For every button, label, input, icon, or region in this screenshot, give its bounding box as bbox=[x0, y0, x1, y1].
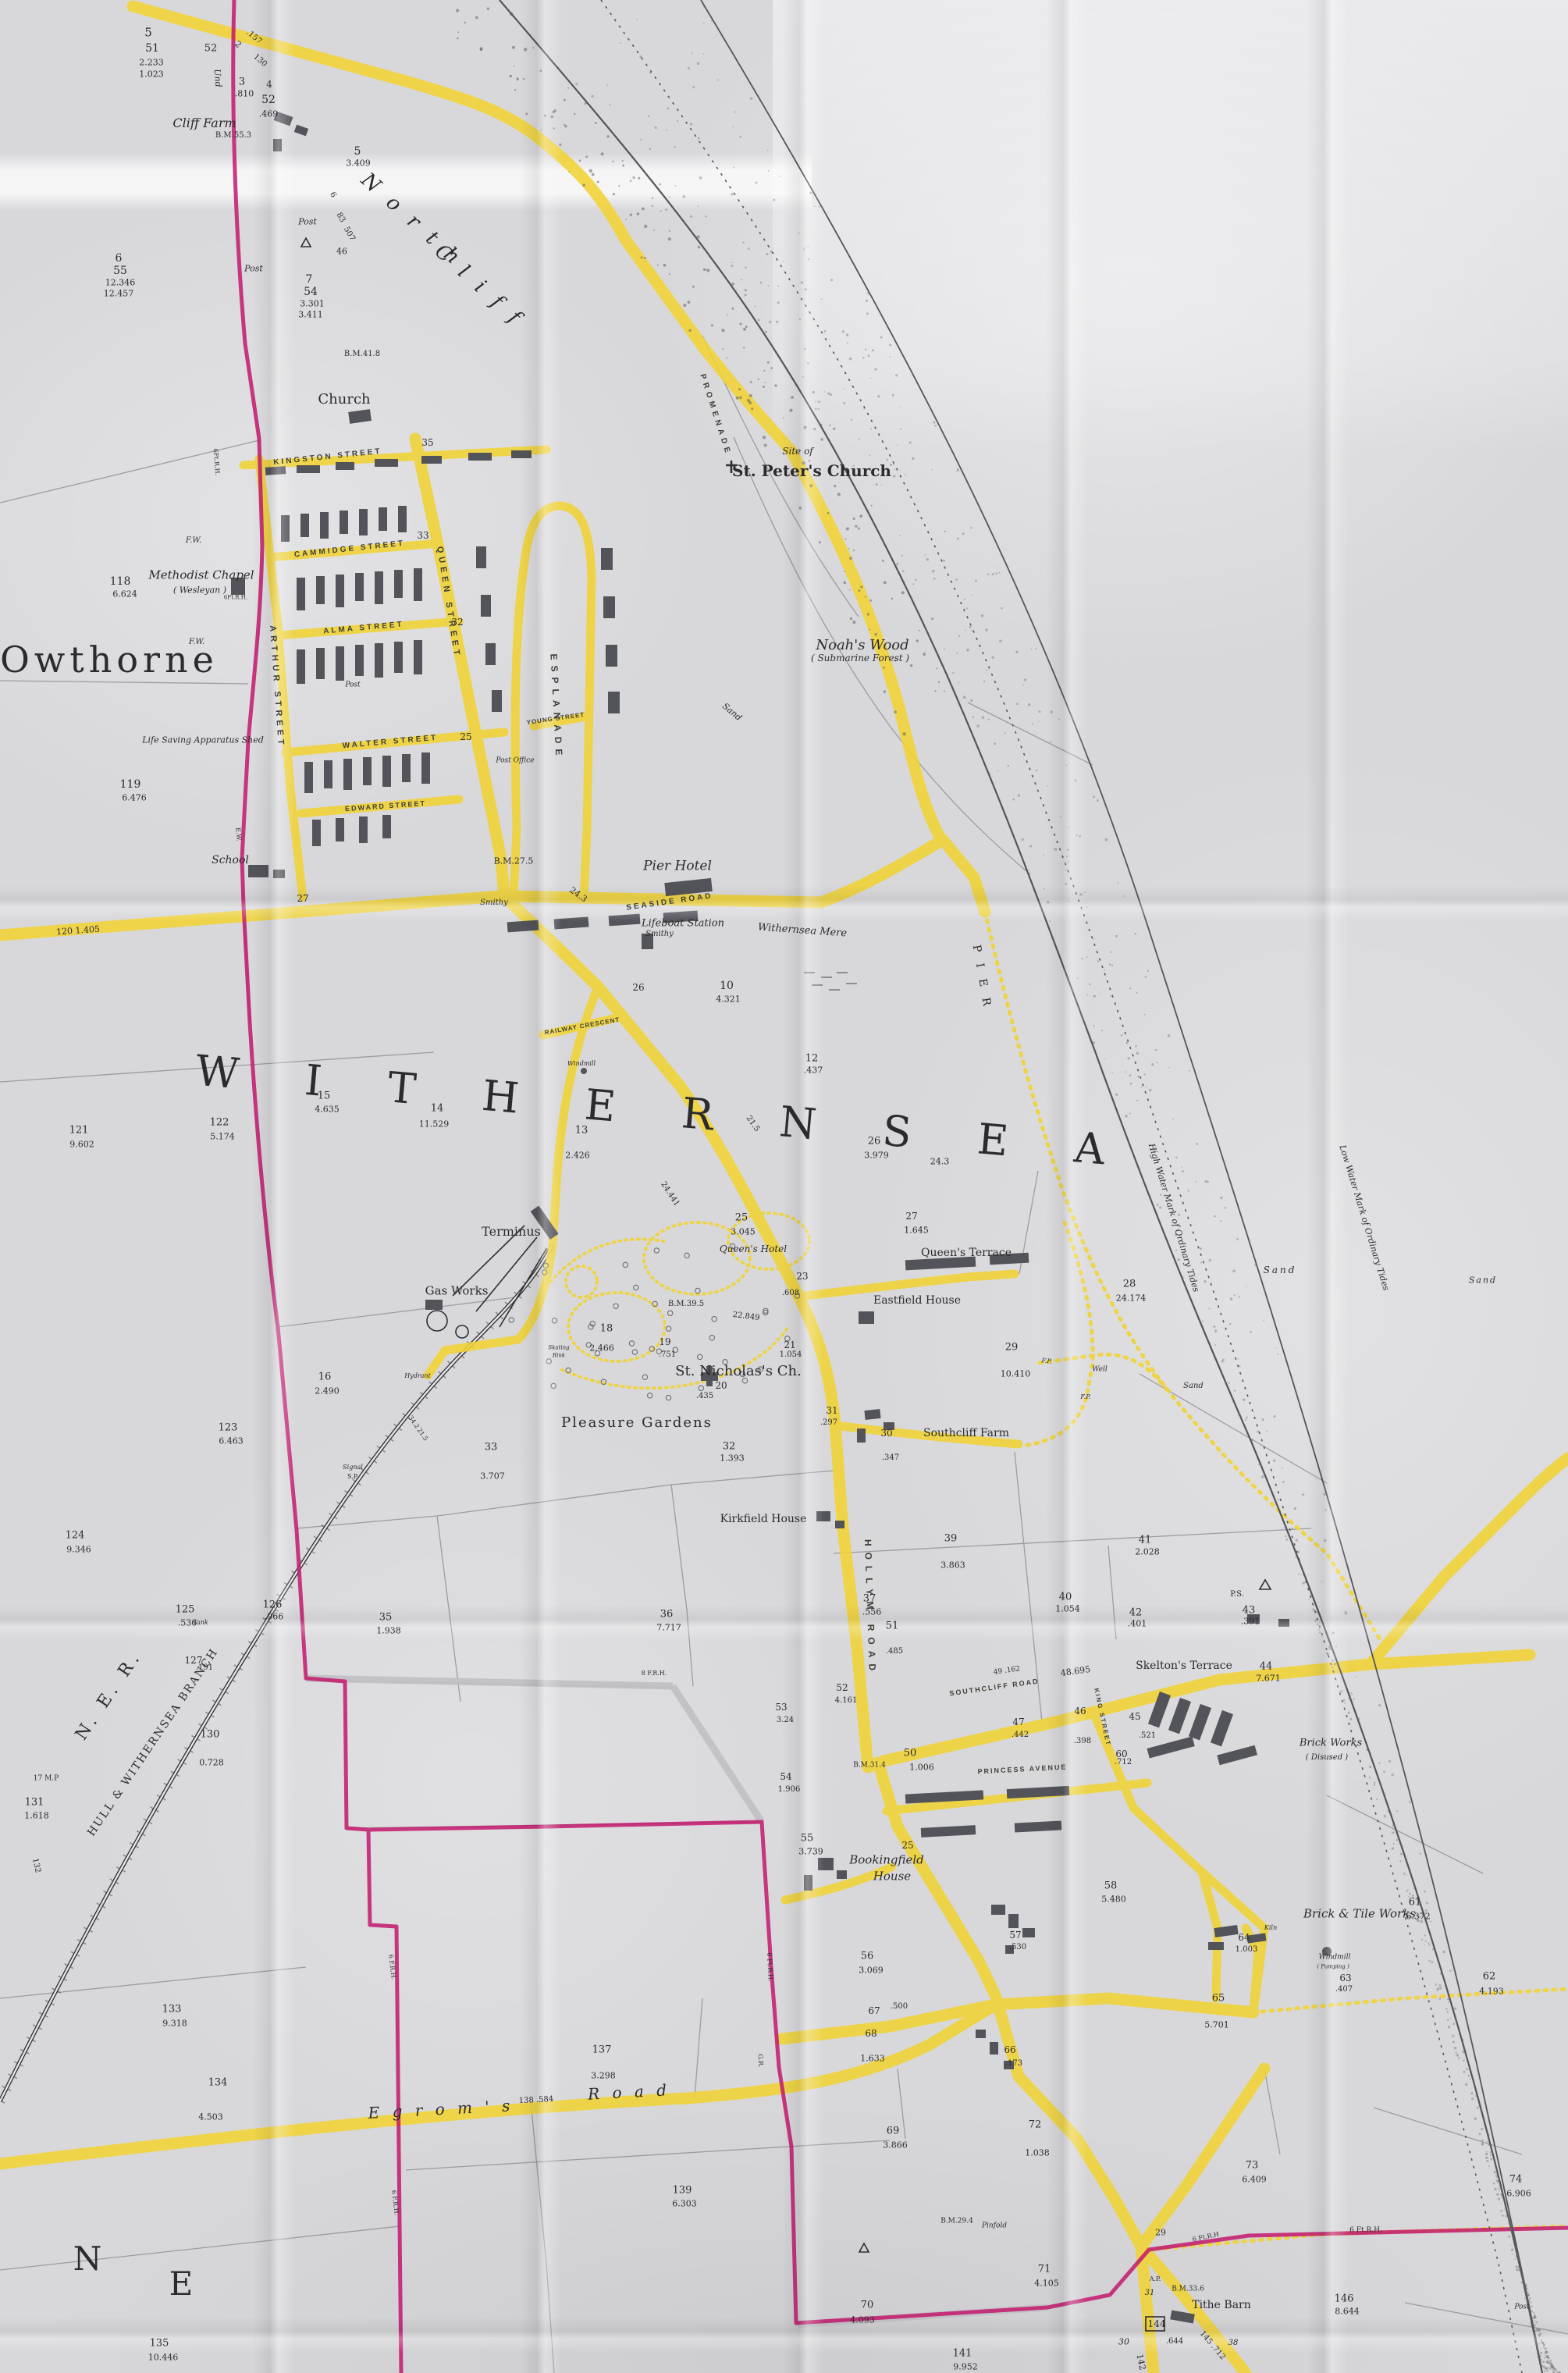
map-label: 6.463 bbox=[219, 1437, 244, 1446]
map-label: 1.906 bbox=[778, 1786, 801, 1794]
map-label: F.W. bbox=[186, 537, 201, 545]
map-label: R o a d bbox=[588, 2082, 671, 2102]
map-label: 57 bbox=[1009, 1930, 1021, 1940]
map-label: Site of bbox=[782, 446, 812, 456]
map-label: .435 bbox=[696, 1393, 713, 1400]
map-label: P.S. bbox=[1230, 1591, 1244, 1599]
map-label: 130 bbox=[251, 53, 268, 69]
map-label: 121 bbox=[69, 1126, 89, 1136]
map-label: Withernsea Mere bbox=[758, 923, 848, 939]
map-label: 6.476 bbox=[122, 794, 147, 802]
map-label: .644 bbox=[1166, 2338, 1183, 2346]
map-label: Sand bbox=[1264, 1265, 1297, 1275]
map-label: Und bbox=[213, 69, 223, 87]
map-label: Signal bbox=[343, 1464, 363, 1471]
map-label: 6Ft.R.H. bbox=[224, 596, 247, 601]
map-label: 142 bbox=[1135, 2353, 1147, 2371]
map-label: 7.671 bbox=[1256, 1674, 1281, 1683]
map-label: House bbox=[873, 1871, 911, 1883]
map-label: St. Peter's Church bbox=[732, 463, 891, 479]
map-label: 33 bbox=[417, 531, 428, 540]
map-label: .608 bbox=[782, 1290, 799, 1297]
map-label: 120 1.405 bbox=[56, 925, 101, 937]
map-label: 0.728 bbox=[199, 1759, 224, 1767]
map-label: 54 bbox=[304, 286, 318, 297]
map-label: 5.480 bbox=[1101, 1895, 1126, 1904]
map-label: B.M.39.5 bbox=[668, 1300, 704, 1308]
map-label: 126 bbox=[263, 1600, 283, 1610]
map-label: St. Nicholas's Ch. bbox=[675, 1364, 802, 1379]
map-label: Lifeboat Station bbox=[642, 919, 724, 929]
map-label: F.P. bbox=[1041, 1357, 1052, 1365]
map-label: ( Submarine Forest ) bbox=[811, 653, 909, 663]
map-label: 39 bbox=[944, 1534, 958, 1544]
map-sheet: Und5512.2331.023522.1571303.810452.469Cl… bbox=[0, 0, 1568, 2373]
map-label: Rink bbox=[553, 1354, 565, 1359]
map-label: Noah's Wood bbox=[816, 639, 908, 653]
map-label: 74 bbox=[1509, 2175, 1523, 2185]
map-label: 66 bbox=[1004, 2045, 1015, 2055]
map-label: ARTHUR STREET bbox=[268, 625, 285, 749]
map-label: .712 bbox=[1115, 1759, 1132, 1766]
map-label: 32 bbox=[451, 617, 463, 627]
map-label: 6.624 bbox=[112, 590, 137, 599]
map-label: Windmill bbox=[567, 1061, 596, 1067]
map-label: 24.3 bbox=[568, 885, 588, 903]
map-label: 6 Ft.R.H. bbox=[766, 1952, 773, 1981]
map-label: 6 bbox=[328, 191, 337, 200]
map-label: 12.457 bbox=[104, 290, 134, 298]
map-label: 7 bbox=[306, 274, 313, 285]
map-label: 4.321 bbox=[716, 995, 741, 1004]
map-label: 6 F.R.H. bbox=[387, 1954, 396, 1980]
map-label: B.M.31.4 bbox=[853, 1763, 886, 1770]
map-label: Gas Works bbox=[425, 1286, 489, 1297]
map-label: 30 bbox=[1118, 2338, 1129, 2346]
map-label: 51 bbox=[145, 43, 159, 54]
map-label: 70 bbox=[861, 2300, 874, 2311]
map-label: 2.233 bbox=[139, 59, 164, 67]
map-label: 71 bbox=[1038, 2264, 1051, 2275]
map-label: 1.006 bbox=[909, 1763, 934, 1772]
map-label: 49 .162 bbox=[993, 1666, 1020, 1677]
map-label: 53 bbox=[775, 1702, 787, 1712]
map-label: EDWARD STREET bbox=[345, 800, 426, 813]
map-label: B.M.41.8 bbox=[344, 350, 380, 358]
map-label: RAILWAY CRESCENT bbox=[544, 1017, 620, 1037]
map-label: 12.346 bbox=[105, 279, 136, 287]
map-label: B.M.29.4 bbox=[940, 2218, 973, 2225]
map-label: 41 bbox=[1139, 1535, 1152, 1546]
map-label: N bbox=[73, 2243, 102, 2275]
map-label: 17 M.P bbox=[34, 1776, 59, 1783]
map-label: 48.695 bbox=[1060, 1665, 1091, 1677]
map-label: .469 bbox=[259, 110, 279, 119]
map-label: 6Ft.R.H. bbox=[212, 448, 221, 475]
map-label: Hydrant bbox=[404, 1373, 431, 1379]
map-label: 16 bbox=[318, 1372, 332, 1382]
map-label: .157 bbox=[244, 29, 262, 46]
map-label: 132 bbox=[30, 1858, 41, 1874]
map-label: 33 bbox=[485, 1443, 498, 1453]
map-label: Terminus bbox=[482, 1226, 541, 1238]
map-label: 141 bbox=[953, 2349, 972, 2359]
map-label: Cliff Farm bbox=[172, 117, 236, 130]
map-label: 26 bbox=[632, 983, 644, 992]
map-label: Windmill bbox=[1319, 1955, 1351, 1962]
map-label: CAMMIDGE STREET bbox=[293, 540, 405, 560]
map-label: 6 F.R.H. bbox=[390, 2190, 400, 2215]
map-label: 24.441 bbox=[659, 1181, 680, 1208]
map-label: .536 bbox=[178, 1619, 197, 1628]
map-label: 3 bbox=[239, 77, 245, 87]
map-label: PROMENADE bbox=[698, 373, 732, 457]
map-label: Life Saving Apparatus Shed bbox=[142, 736, 264, 745]
map-label: 25 bbox=[460, 732, 471, 742]
map-label: Sand bbox=[721, 702, 744, 723]
map-label: Brick Works bbox=[1300, 1738, 1362, 1749]
map-label: 46 bbox=[336, 247, 347, 256]
map-label: 2.490 bbox=[315, 1387, 340, 1396]
map-label: 119 bbox=[120, 779, 141, 790]
map-label: Post bbox=[298, 218, 317, 226]
map-label: 64 bbox=[1238, 1933, 1250, 1942]
map-label: 1.054 bbox=[1055, 1605, 1080, 1613]
map-label: 51 bbox=[886, 1621, 899, 1631]
map-label: .485 bbox=[886, 1648, 903, 1656]
map-label: .530 bbox=[1009, 1944, 1026, 1951]
map-label: 21 bbox=[784, 1340, 795, 1350]
map-label: ( Wesleyan ) bbox=[173, 586, 226, 595]
map-label: G.R. bbox=[757, 2054, 764, 2068]
map-label: 65 bbox=[1212, 1994, 1225, 2004]
map-label: 6 Ft.R.H. bbox=[1349, 2228, 1382, 2235]
map-label: 13 bbox=[575, 1126, 588, 1136]
map-label: 1.393 bbox=[720, 1454, 745, 1463]
map-label: 72 bbox=[1029, 2120, 1042, 2130]
map-label: .297 bbox=[820, 1419, 837, 1427]
map-label: 2.466 bbox=[589, 1344, 614, 1353]
map-label: Pier Hotel bbox=[643, 860, 712, 873]
map-label: Pinfold bbox=[982, 2223, 1007, 2230]
map-label: 56 bbox=[861, 1951, 874, 1962]
map-label: 68 bbox=[865, 2029, 876, 2038]
map-label: 45 bbox=[1129, 1712, 1140, 1721]
map-label: .810 bbox=[235, 90, 254, 98]
map-label: .347 bbox=[882, 1454, 899, 1462]
map-label: ( Disused ) bbox=[1306, 1754, 1348, 1762]
map-label: 1.938 bbox=[376, 1627, 401, 1635]
map-label: Sand bbox=[1469, 1276, 1497, 1285]
map-label: .437 bbox=[804, 1066, 823, 1075]
map-label: 24.174 bbox=[1116, 1294, 1147, 1303]
map-label: 20 bbox=[715, 1381, 727, 1390]
map-label: 1.003 bbox=[1236, 1946, 1258, 1954]
map-label: B.M.33.6 bbox=[1172, 2286, 1204, 2293]
map-label: .401 bbox=[1128, 1620, 1147, 1628]
map-label: 5.701 bbox=[1204, 2021, 1229, 2030]
map-label: 4.503 bbox=[198, 2113, 223, 2122]
map-label: 1.054 bbox=[780, 1351, 802, 1359]
map-label: 6.303 bbox=[672, 2200, 697, 2208]
map-label: Brick & Tile Works bbox=[1303, 1909, 1416, 1920]
map-label: 137 bbox=[592, 2045, 612, 2055]
map-label: SEASIDE ROAD bbox=[626, 892, 713, 913]
map-label: 2.028 bbox=[1135, 1548, 1160, 1557]
map-label: Bookingfield bbox=[849, 1855, 924, 1866]
map-label: 8 F.R.H. bbox=[642, 1670, 667, 1677]
map-label: HOLLYM ROAD bbox=[863, 1539, 877, 1677]
map-label: Tithe Barn bbox=[1192, 2300, 1251, 2311]
map-label: 9.952 bbox=[953, 2363, 978, 2371]
map-label: 55 bbox=[113, 265, 127, 276]
map-label: .407 bbox=[1335, 1986, 1353, 1994]
map-label: Pleasure Gardens bbox=[561, 1416, 713, 1430]
map-label: 3.866 bbox=[883, 2141, 908, 2150]
map-label: 50 bbox=[904, 1749, 917, 1759]
map-label: High Water Mark of Ordinary Tides bbox=[1147, 1143, 1200, 1293]
map-label: 15 bbox=[318, 1091, 331, 1101]
map-label: 10.446 bbox=[148, 2353, 179, 2362]
map-label: 4.105 bbox=[1034, 2279, 1059, 2288]
map-label: 8.644 bbox=[1335, 2307, 1360, 2316]
map-label: KING STREET bbox=[1093, 1688, 1111, 1747]
map-label: 3.24 bbox=[777, 1717, 794, 1724]
map-label: B.M.27.5 bbox=[494, 857, 534, 866]
map-label: 3.301 bbox=[300, 300, 325, 308]
map-label: 3.298 bbox=[591, 2072, 616, 2080]
map-label: 25 bbox=[901, 1841, 913, 1850]
map-label: HULL & WITHERNSEA BRANCH bbox=[86, 1646, 220, 1838]
map-label: 54 bbox=[780, 1772, 791, 1781]
map-label: Low Water Mark of Ordinary Tides bbox=[1338, 1144, 1390, 1291]
map-label: F.P. bbox=[1080, 1394, 1090, 1400]
map-label: 1.023 bbox=[139, 70, 164, 79]
map-label: 67 bbox=[868, 2006, 880, 2015]
map-label: .391 bbox=[1241, 1617, 1260, 1626]
map-label: 23 bbox=[796, 1272, 808, 1281]
map-label: B.M.55.3 bbox=[215, 132, 251, 140]
map-label: 6 bbox=[116, 253, 123, 264]
map-label: 26 bbox=[868, 1137, 881, 1147]
map-label: 9.602 bbox=[69, 1140, 94, 1149]
map-label: 28 bbox=[1123, 1279, 1136, 1290]
map-label: 7.717 bbox=[656, 1624, 681, 1632]
map-label: 5 bbox=[144, 27, 152, 39]
map-label: 4.093 bbox=[850, 2316, 875, 2325]
map-label: 27 bbox=[905, 1211, 917, 1221]
map-label: 30 bbox=[880, 1428, 892, 1438]
map-label: Kiln bbox=[1264, 1925, 1277, 1931]
map-label: 118 bbox=[110, 576, 131, 587]
map-label: 38 bbox=[1228, 2339, 1239, 2347]
map-label: 130 bbox=[201, 1730, 220, 1740]
map-label: 6.409 bbox=[1242, 2176, 1267, 2184]
map-label: 19 bbox=[659, 1337, 670, 1347]
map-label: 52 bbox=[204, 44, 218, 54]
map-label: Kirkfield House bbox=[720, 1514, 807, 1524]
map-label: 10.410 bbox=[1001, 1370, 1031, 1379]
map-label: 29 bbox=[1005, 1343, 1019, 1353]
map-label: 83 bbox=[334, 212, 346, 224]
map-label: 145 .712 bbox=[1198, 2330, 1226, 2362]
map-label: .173 bbox=[1005, 2060, 1022, 2068]
map-label: 63 bbox=[1339, 1973, 1351, 1983]
map-label: 6 Ft.R.H bbox=[1192, 2232, 1219, 2243]
map-label: Southcliff Farm bbox=[923, 1428, 1009, 1439]
map-label: ESPLANADE bbox=[549, 653, 564, 760]
map-label: 62 bbox=[1483, 1972, 1496, 1982]
map-label: 31 bbox=[826, 1406, 837, 1415]
map-label: 25 bbox=[735, 1213, 748, 1223]
map-label: 144 bbox=[1148, 2319, 1166, 2329]
map-label: 9.318 bbox=[162, 2019, 187, 2028]
map-label: 69 bbox=[887, 2126, 900, 2136]
labels-layer: Und5512.2331.023522.1571303.810452.469Cl… bbox=[0, 0, 1568, 2373]
map-label: .500 bbox=[891, 2003, 908, 2011]
map-label: 4.635 bbox=[315, 1105, 340, 1114]
map-label: .751 bbox=[659, 1351, 676, 1359]
map-label: Queen's Hotel bbox=[720, 1244, 787, 1254]
map-label: 35 bbox=[421, 438, 433, 447]
map-label: Queen's Terrace bbox=[921, 1247, 1012, 1258]
map-label: 507 bbox=[342, 226, 356, 243]
map-label: Post bbox=[1514, 2304, 1529, 2311]
map-label: 43 bbox=[1243, 1606, 1256, 1616]
map-label: 29 bbox=[1155, 2229, 1166, 2237]
map-label: 10 bbox=[720, 980, 734, 991]
map-label: 1.633 bbox=[860, 2055, 885, 2063]
map-label: 139 bbox=[673, 2186, 692, 2196]
map-label: QUEEN STREET bbox=[435, 546, 461, 660]
map-label: Skating bbox=[548, 1346, 569, 1351]
map-label: 21.5 bbox=[416, 1427, 429, 1442]
map-label: Skelton's Terrace bbox=[1136, 1660, 1232, 1671]
map-label: P I E R bbox=[971, 944, 993, 1010]
map-label: Sand bbox=[1183, 1382, 1204, 1390]
map-label: 4.193 bbox=[1479, 1987, 1504, 1996]
map-label: ( Pumping ) bbox=[1317, 1965, 1349, 1970]
map-label: 5 bbox=[354, 146, 361, 157]
map-label: 32 bbox=[723, 1442, 736, 1452]
map-label: 4 bbox=[266, 80, 272, 89]
map-label: 124 bbox=[66, 1531, 85, 1541]
map-label: 2.426 bbox=[565, 1151, 590, 1160]
map-label: 47 bbox=[1012, 1717, 1024, 1727]
map-label: N. E. R. bbox=[73, 1648, 146, 1744]
map-label: S.P. bbox=[347, 1474, 358, 1480]
map-label: Owthorne bbox=[0, 642, 219, 678]
map-label: 9.346 bbox=[66, 1546, 91, 1554]
map-label: 11.529 bbox=[419, 1120, 450, 1129]
map-label: 138 .584 bbox=[519, 2096, 554, 2105]
map-label: .966 bbox=[265, 1613, 284, 1621]
map-label: Post bbox=[345, 682, 360, 689]
map-label: 35 bbox=[379, 1613, 393, 1623]
map-label: E.W. bbox=[234, 827, 242, 841]
map-label: WALTER STREET bbox=[342, 735, 438, 751]
map-label: 135 bbox=[150, 2339, 169, 2349]
map-label: 36 bbox=[660, 1610, 674, 1620]
map-label: 34.2 bbox=[407, 1414, 421, 1429]
map-label: 22.849 bbox=[732, 1311, 760, 1322]
map-label: SOUTHCLIFF ROAD bbox=[949, 1677, 1040, 1697]
map-label: 3.069 bbox=[859, 1966, 884, 1975]
map-label: 133 bbox=[162, 2005, 182, 2015]
map-label: 134 bbox=[208, 2078, 228, 2088]
map-label: School bbox=[212, 855, 249, 866]
map-label: 73 bbox=[1246, 2161, 1259, 2171]
map-label: 146 bbox=[1335, 2294, 1354, 2304]
map-label: 18 bbox=[600, 1324, 613, 1334]
map-label: 125 bbox=[176, 1605, 195, 1615]
map-label: 131 bbox=[25, 1798, 44, 1808]
map-label: 1.618 bbox=[24, 1812, 49, 1820]
map-label: 3.707 bbox=[480, 1472, 505, 1481]
map-label: 123 bbox=[219, 1423, 238, 1433]
map-label: A.P. bbox=[1150, 2276, 1161, 2282]
map-label: 42 bbox=[1129, 1608, 1143, 1618]
map-label: 122 bbox=[210, 1118, 229, 1128]
map-label: 6.906 bbox=[1506, 2190, 1531, 2198]
map-label: ALMA STREET bbox=[323, 621, 404, 635]
map-label: 52 bbox=[261, 94, 276, 105]
map-label: Post Office bbox=[496, 758, 534, 765]
map-label: 2 bbox=[233, 40, 243, 50]
map-label: Post bbox=[244, 265, 263, 273]
map-label: E g r o m ' s bbox=[368, 2097, 514, 2121]
map-label: 14 bbox=[431, 1104, 444, 1114]
map-label: 3.045 bbox=[731, 1228, 756, 1236]
map-label: C l i f f bbox=[431, 241, 528, 331]
map-label: Church bbox=[318, 393, 370, 407]
map-label: Smithy bbox=[645, 930, 674, 938]
map-label: 58 bbox=[1104, 1881, 1118, 1891]
map-label: KINGSTON STREET bbox=[273, 448, 382, 468]
map-label: .398 bbox=[1074, 1738, 1091, 1745]
map-label: 40 bbox=[1059, 1592, 1072, 1603]
map-label: 3.411 bbox=[298, 311, 323, 319]
map-label: 31 bbox=[1145, 2289, 1155, 2297]
map-label: E bbox=[169, 2268, 194, 2300]
map-label: 46 bbox=[1074, 1706, 1086, 1716]
map-label: PRINCESS AVENUE bbox=[977, 1763, 1067, 1775]
map-label: Well bbox=[1092, 1367, 1108, 1374]
map-label: .521 bbox=[1139, 1732, 1156, 1740]
map-label: 44 bbox=[1260, 1662, 1273, 1672]
map-label: 5.174 bbox=[210, 1133, 235, 1141]
map-label: 3.739 bbox=[798, 1848, 823, 1856]
map-label: 3.863 bbox=[940, 1561, 965, 1570]
map-label: .442 bbox=[1012, 1731, 1029, 1739]
map-label: 1.038 bbox=[1025, 2149, 1050, 2158]
map-label: 3.979 bbox=[864, 1151, 889, 1160]
map-label: 12 bbox=[805, 1054, 819, 1064]
map-label: 27 bbox=[297, 894, 308, 903]
map-label: 3.409 bbox=[346, 159, 371, 168]
map-label: 24.3 bbox=[930, 1158, 950, 1166]
map-label: 55 bbox=[801, 1834, 814, 1844]
map-label: 52 bbox=[836, 1683, 848, 1692]
map-label: Eastfield House bbox=[873, 1295, 961, 1306]
map-label: Methodist Chapel bbox=[148, 570, 254, 582]
map-label: Smithy bbox=[480, 899, 508, 907]
map-label: 1.645 bbox=[904, 1226, 929, 1235]
map-label: 4.161 bbox=[835, 1697, 858, 1705]
